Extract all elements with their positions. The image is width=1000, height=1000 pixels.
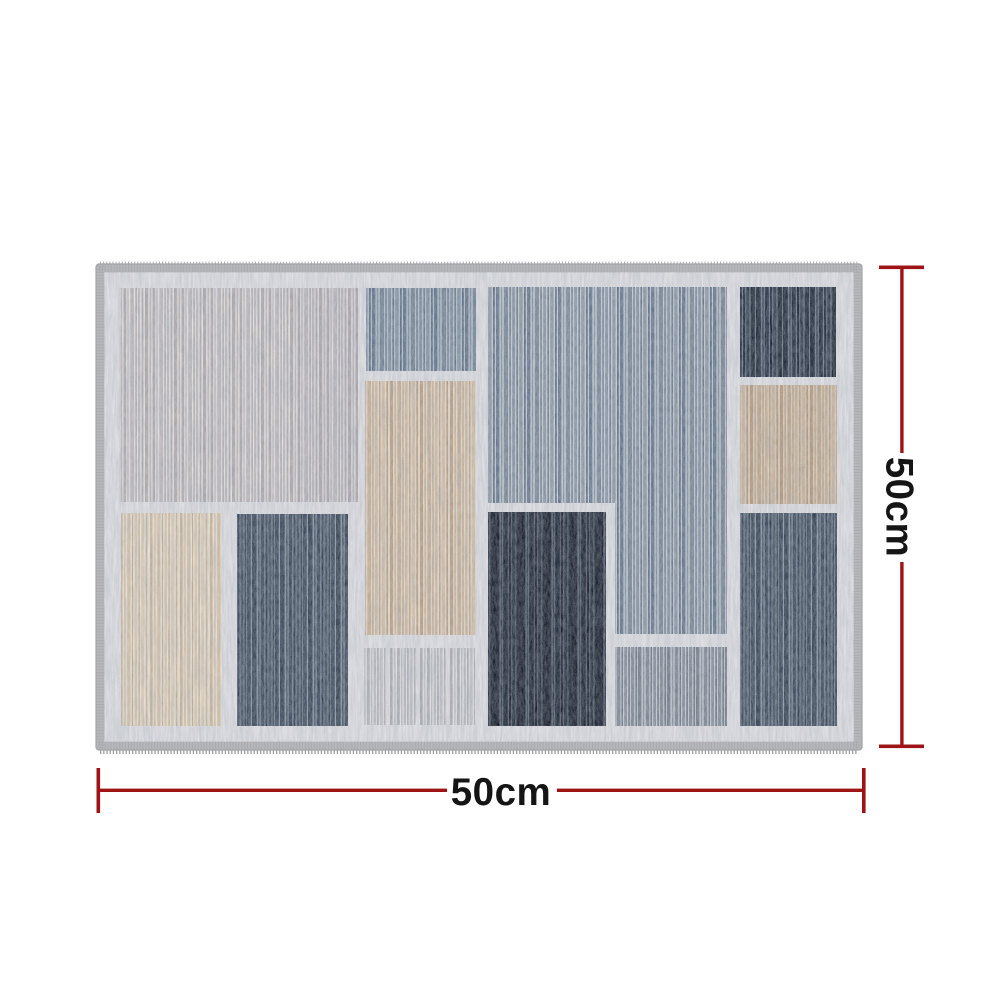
svg-text:50cm: 50cm xyxy=(451,771,551,814)
svg-text:50cm: 50cm xyxy=(878,457,921,557)
